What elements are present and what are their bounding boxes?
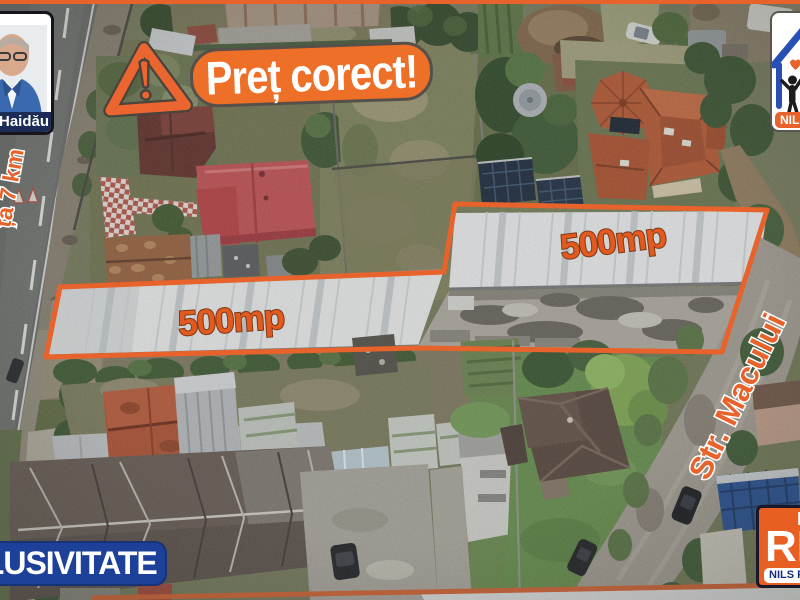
svg-text:500mp: 500mp xyxy=(177,297,285,343)
svg-text:Str. Macului: Str. Macului xyxy=(681,308,792,485)
svg-text:500mp: 500mp xyxy=(558,216,668,268)
svg-text:ța 7 km: ța 7 km xyxy=(0,147,30,230)
